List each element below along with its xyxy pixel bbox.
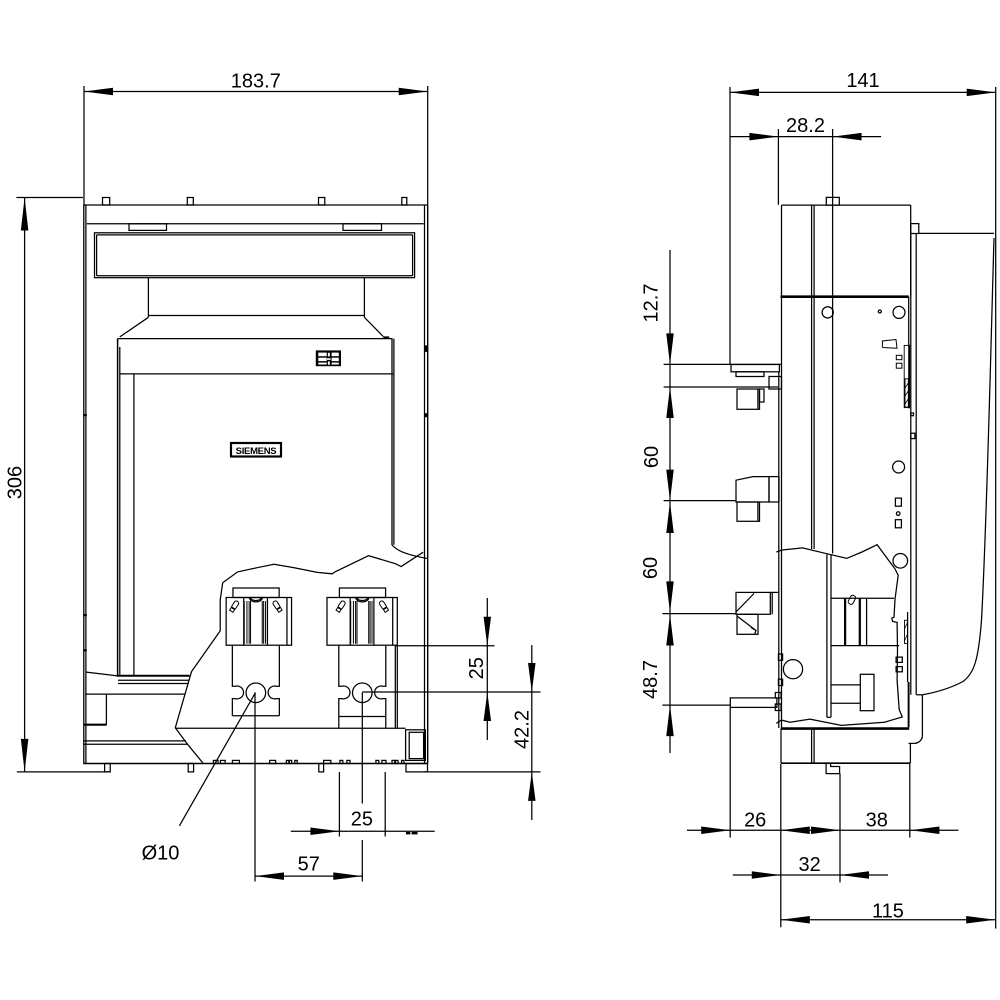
svg-text:25: 25 [466, 657, 488, 679]
svg-text:42.2: 42.2 [512, 710, 534, 749]
svg-text:115: 115 [872, 901, 904, 923]
svg-text:141: 141 [846, 70, 879, 92]
svg-text:306: 306 [5, 466, 27, 499]
svg-text:28.2: 28.2 [786, 115, 825, 137]
svg-text:26: 26 [744, 809, 766, 831]
svg-text:60: 60 [641, 446, 663, 468]
svg-text:48.7: 48.7 [640, 660, 662, 699]
svg-text:12.7: 12.7 [641, 284, 663, 323]
svg-text:57: 57 [298, 854, 320, 876]
svg-text:38: 38 [866, 809, 888, 831]
svg-text:25: 25 [351, 808, 373, 830]
svg-text:SIEMENS: SIEMENS [236, 446, 277, 457]
svg-text:Ø10: Ø10 [142, 843, 180, 865]
svg-text:60: 60 [640, 557, 662, 579]
svg-text:183.7: 183.7 [231, 70, 281, 92]
svg-text:32: 32 [798, 854, 820, 876]
